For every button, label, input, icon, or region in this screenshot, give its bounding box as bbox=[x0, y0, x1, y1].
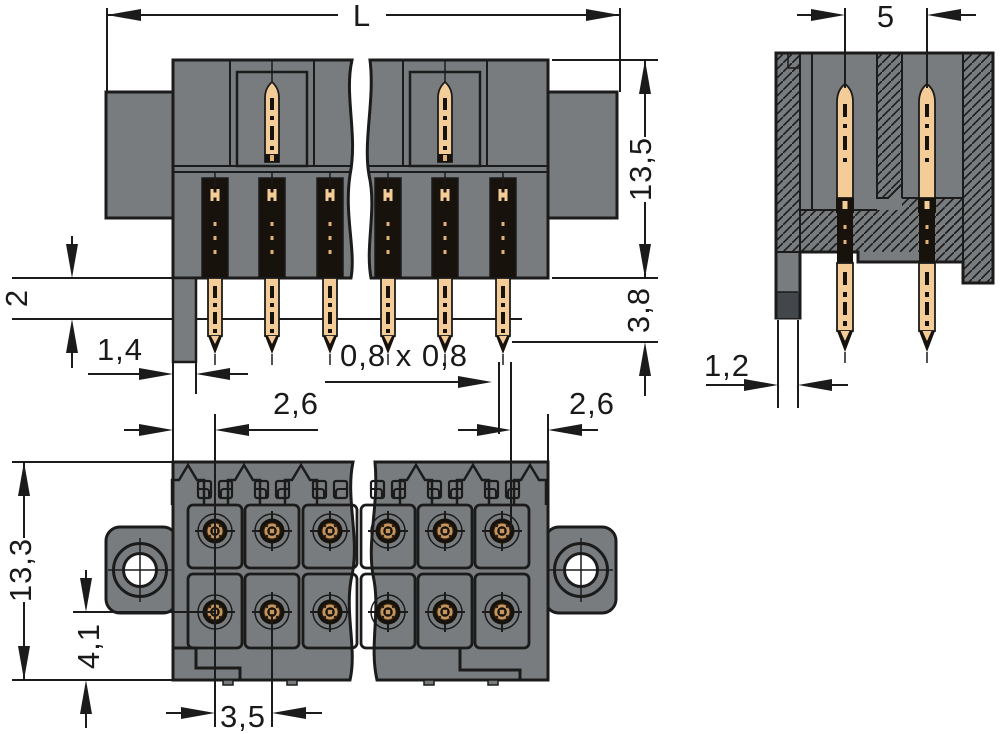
front-pin bbox=[380, 172, 396, 365]
front-right-tab bbox=[548, 92, 617, 218]
dim-label-foot-width-front: 1,4 bbox=[97, 332, 143, 367]
dim-label-pin-pitch: 3,5 bbox=[220, 699, 266, 734]
dim-label-length: L bbox=[353, 0, 371, 33]
dim-label-height: 13,5 bbox=[623, 137, 658, 201]
front-solder-foot bbox=[173, 278, 196, 362]
mounting-flange bbox=[545, 527, 616, 613]
dim-label-edge-to-pin-left: 2,6 bbox=[273, 386, 319, 421]
connector-technical-drawing: L 13,5 3,8 2 1,4 0,8 x 0,8 2,6 2,6 5 1,2… bbox=[0, 0, 1000, 734]
dim-label-row-pitch: 5 bbox=[877, 0, 895, 34]
front-left-tab bbox=[106, 92, 173, 218]
front-pin bbox=[322, 172, 338, 365]
front-view-body bbox=[106, 60, 617, 362]
dim-label-standoff: 2 bbox=[0, 289, 34, 307]
front-pin bbox=[264, 172, 280, 365]
dim-label-edge-to-pin-right: 2,6 bbox=[569, 386, 615, 421]
dim-label-depth: 13,3 bbox=[3, 538, 38, 602]
front-pin bbox=[207, 172, 223, 365]
dim-label-pin-square: 0,8 x 0,8 bbox=[340, 338, 468, 373]
dim-label-foot-width-side: 1,2 bbox=[704, 348, 750, 383]
dim-label-row-offset: 4,1 bbox=[71, 623, 106, 669]
dim-label-pin-protrusion: 3,8 bbox=[621, 287, 656, 333]
top-view-body bbox=[106, 462, 616, 685]
mounting-flange bbox=[106, 527, 177, 613]
side-view-body bbox=[776, 53, 993, 318]
front-pin bbox=[437, 172, 453, 365]
front-pin bbox=[495, 172, 511, 365]
technical-drawing-page: L 13,5 3,8 2 1,4 0,8 x 0,8 2,6 2,6 5 1,2… bbox=[0, 0, 1000, 734]
